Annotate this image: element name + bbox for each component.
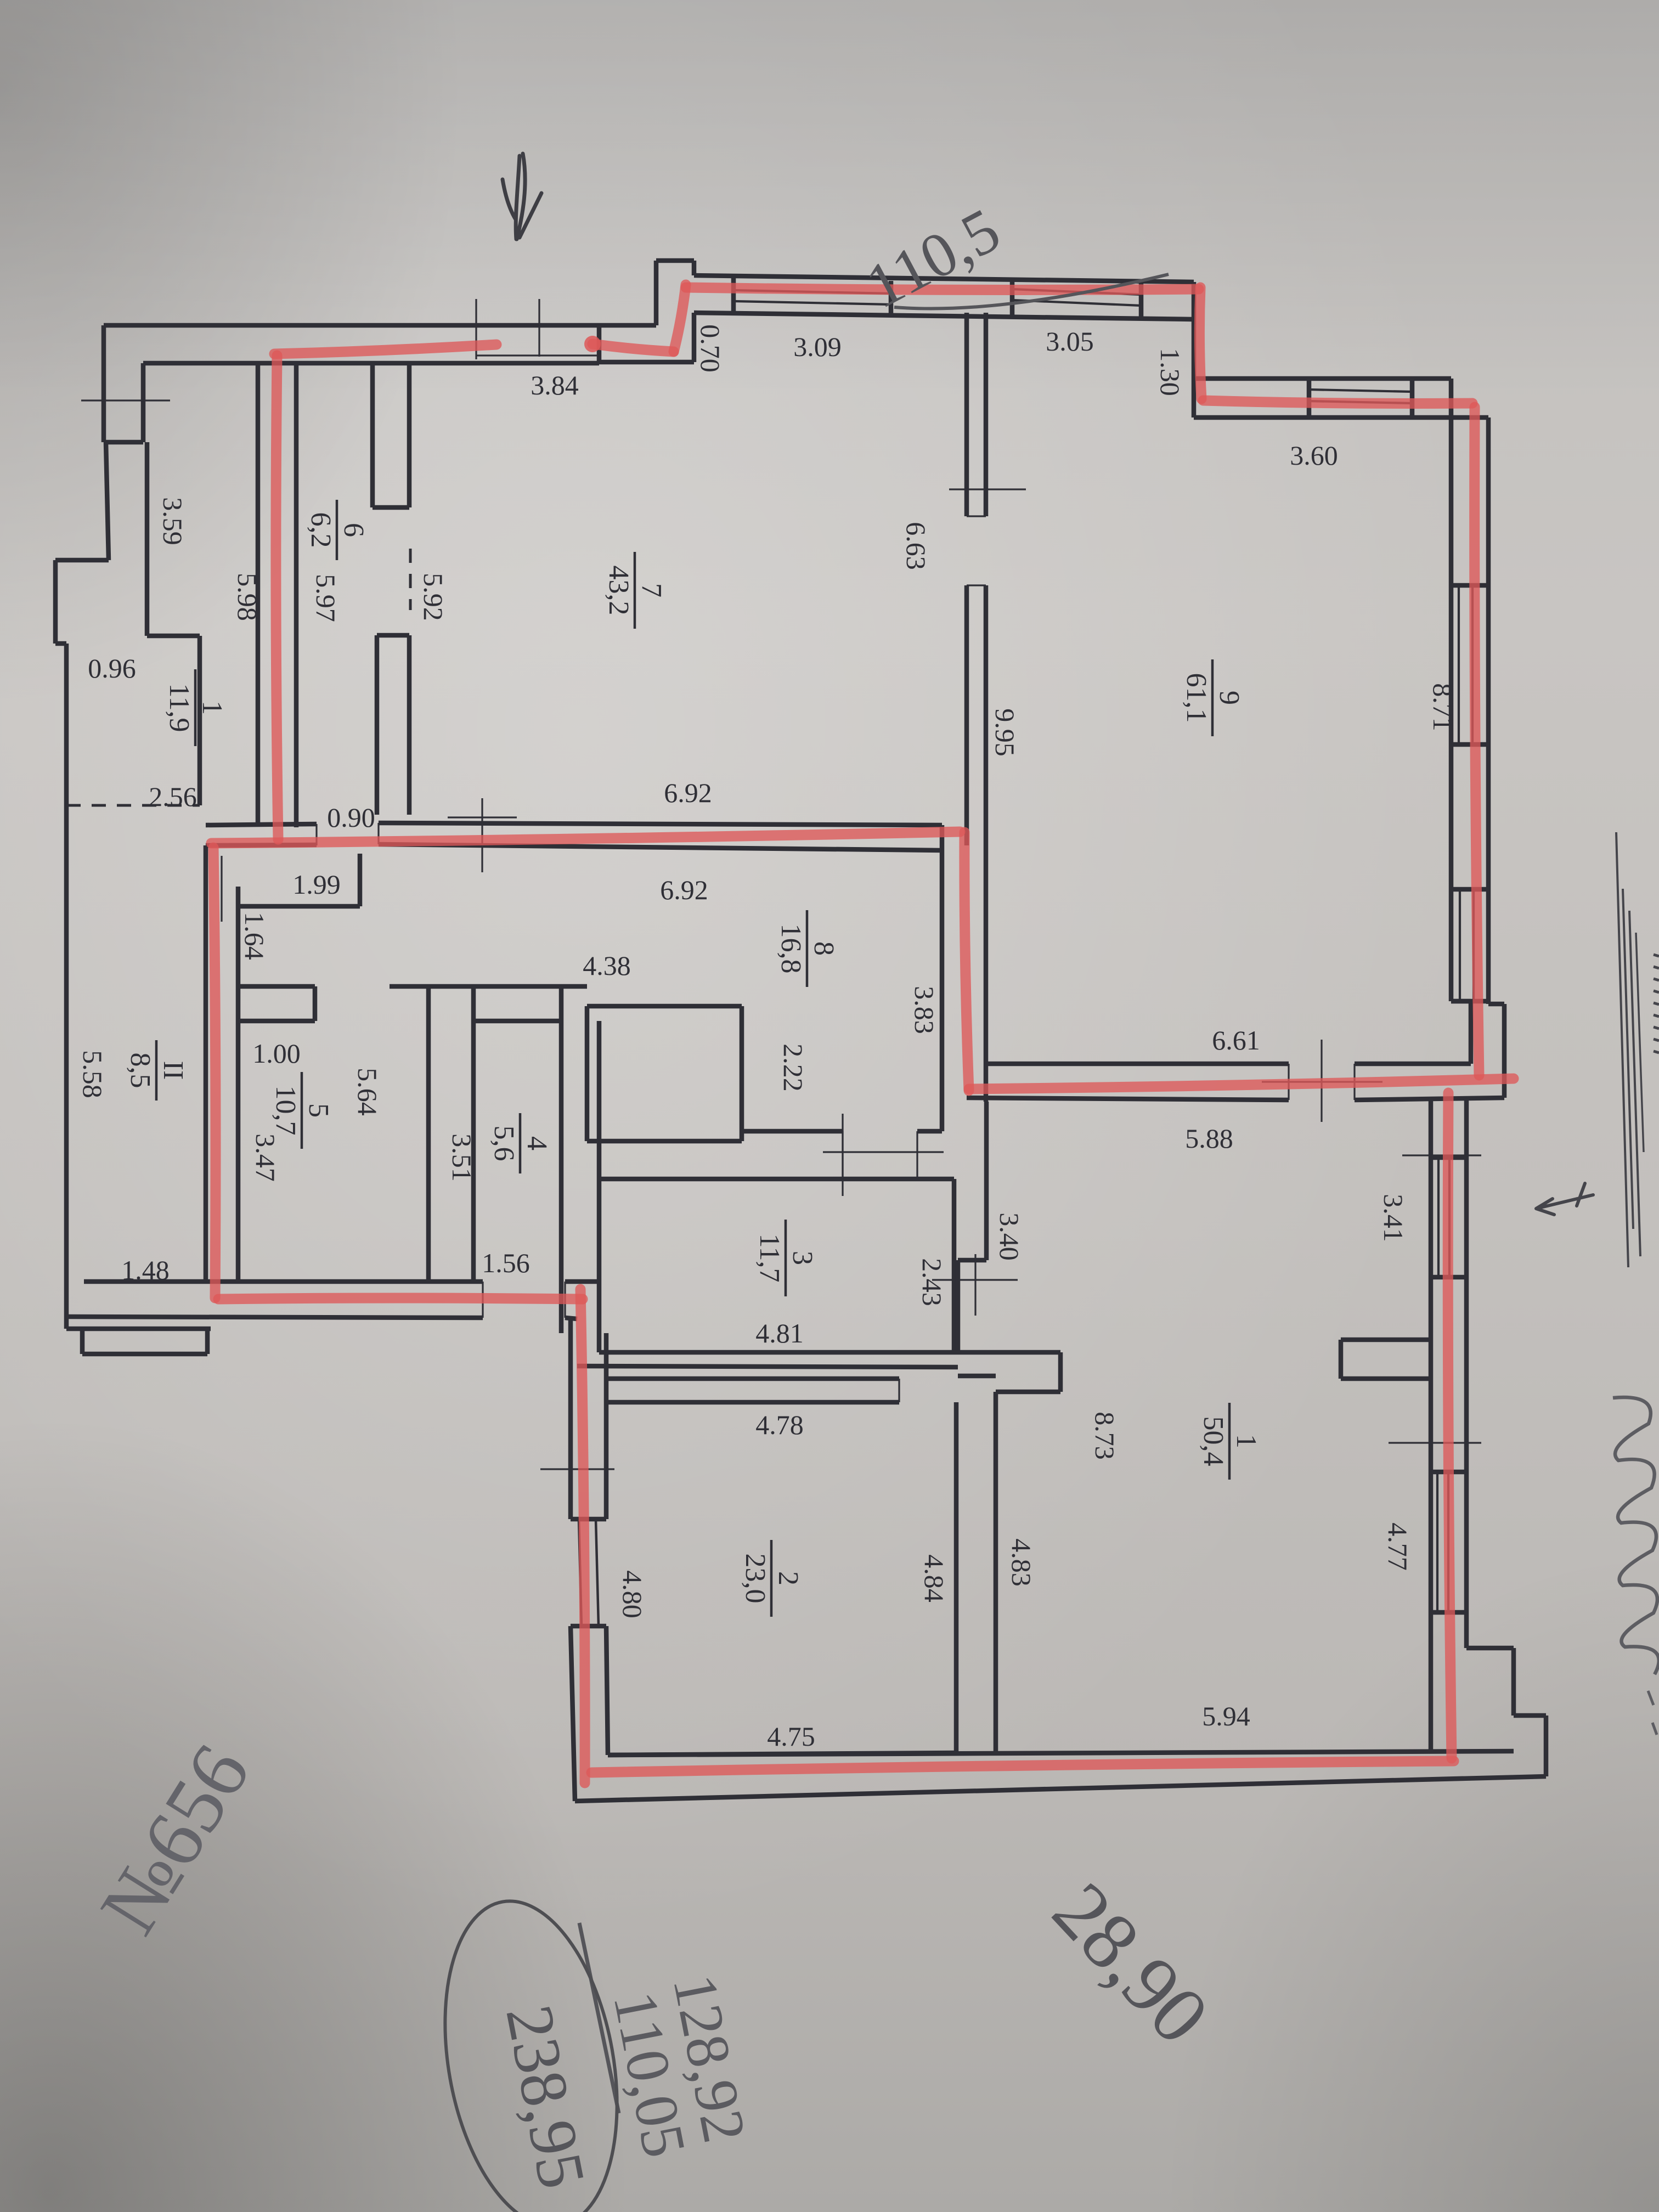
svg-text:3.41: 3.41: [1378, 1194, 1409, 1242]
svg-text:3.09: 3.09: [793, 331, 842, 362]
svg-text:1.99: 1.99: [292, 869, 341, 900]
svg-text:3.59: 3.59: [157, 497, 188, 545]
svg-text:5,6: 5,6: [488, 1126, 520, 1161]
svg-text:5: 5: [303, 1103, 334, 1118]
svg-text:5.92: 5.92: [418, 573, 449, 621]
svg-text:50,4: 50,4: [1198, 1417, 1229, 1466]
svg-text:3: 3: [787, 1251, 818, 1265]
svg-text:1.56: 1.56: [482, 1248, 530, 1278]
svg-text:6.92: 6.92: [660, 874, 708, 905]
svg-text:9.95: 9.95: [990, 708, 1020, 757]
svg-text:3.60: 3.60: [1290, 440, 1338, 471]
svg-text:4.80: 4.80: [617, 1570, 648, 1618]
svg-text:10,7: 10,7: [270, 1086, 301, 1136]
svg-text:4.84: 4.84: [919, 1554, 950, 1602]
svg-text:4.77: 4.77: [1383, 1522, 1413, 1571]
svg-text:4.38: 4.38: [583, 950, 631, 981]
svg-text:3.84: 3.84: [531, 370, 579, 400]
svg-text:5.98: 5.98: [232, 573, 263, 621]
svg-text:3.51: 3.51: [447, 1133, 477, 1182]
svg-text:4.78: 4.78: [755, 1409, 804, 1440]
svg-text:3.40: 3.40: [994, 1212, 1025, 1261]
svg-text:43,2: 43,2: [603, 566, 634, 616]
svg-text:4.75: 4.75: [767, 1721, 815, 1752]
svg-text:6.61: 6.61: [1212, 1025, 1260, 1056]
svg-text:6.63: 6.63: [901, 522, 932, 570]
svg-text:II: II: [157, 1061, 189, 1080]
svg-text:8: 8: [808, 941, 839, 956]
svg-text:3.47: 3.47: [250, 1133, 281, 1182]
svg-text:2.56: 2.56: [149, 781, 197, 812]
svg-text:1.64: 1.64: [239, 912, 270, 960]
svg-text:0.96: 0.96: [88, 653, 136, 684]
svg-text:1.48: 1.48: [121, 1255, 170, 1285]
svg-text:6.92: 6.92: [664, 777, 712, 808]
svg-text:16,8: 16,8: [775, 924, 806, 974]
svg-text:4.83: 4.83: [1006, 1538, 1037, 1587]
svg-text:11,7: 11,7: [754, 1233, 785, 1282]
svg-text:3.83: 3.83: [909, 986, 940, 1034]
svg-text:1.30: 1.30: [1155, 348, 1186, 396]
svg-text:3.05: 3.05: [1046, 326, 1094, 357]
svg-text:5.88: 5.88: [1185, 1123, 1233, 1154]
svg-text:6,2: 6,2: [305, 512, 336, 548]
svg-text:5.58: 5.58: [77, 1050, 108, 1098]
svg-text:23,0: 23,0: [740, 1554, 771, 1604]
svg-text:7: 7: [636, 583, 667, 597]
svg-text:0.70: 0.70: [695, 324, 726, 373]
svg-text:6: 6: [338, 523, 369, 537]
svg-text:2.43: 2.43: [917, 1258, 947, 1306]
svg-text:11,9: 11,9: [163, 683, 195, 732]
svg-text:5.94: 5.94: [1202, 1701, 1250, 1731]
svg-text:4: 4: [521, 1136, 552, 1150]
svg-text:8.71: 8.71: [1427, 683, 1458, 731]
svg-text:8,5: 8,5: [125, 1053, 156, 1088]
svg-text:2: 2: [772, 1571, 804, 1585]
svg-text:5.64: 5.64: [352, 1068, 383, 1116]
svg-text:1: 1: [1231, 1434, 1262, 1448]
svg-text:9: 9: [1214, 691, 1245, 705]
svg-text:8.73: 8.73: [1090, 1412, 1120, 1460]
svg-text:1: 1: [196, 701, 228, 715]
svg-text:4.81: 4.81: [755, 1318, 804, 1348]
svg-text:5.97: 5.97: [311, 574, 341, 622]
svg-text:0.90: 0.90: [327, 802, 375, 833]
svg-text:61,1: 61,1: [1181, 673, 1212, 723]
svg-text:1.00: 1.00: [252, 1038, 301, 1069]
svg-text:2.22: 2.22: [778, 1043, 809, 1092]
